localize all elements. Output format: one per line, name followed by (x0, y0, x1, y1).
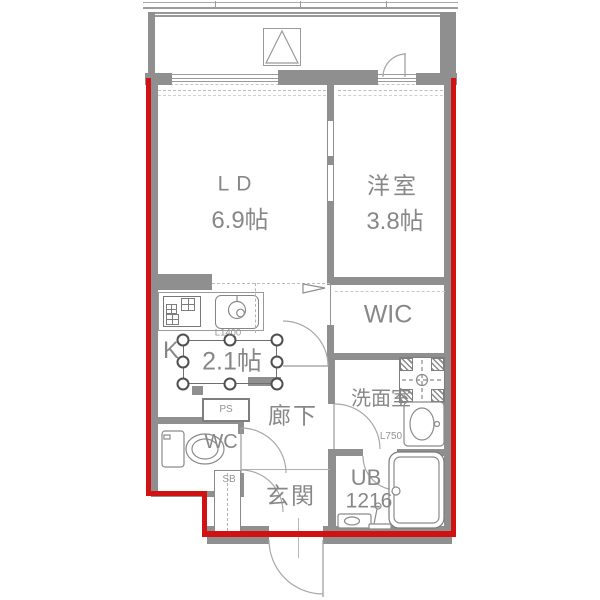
selection-handle-s[interactable] (224, 378, 237, 391)
room-label-kitchen: K (163, 339, 179, 363)
vanity-length: L750 (380, 432, 402, 442)
room-label-washroom: 洗面室 (351, 389, 411, 409)
sliding-door-arrow-icon (303, 284, 325, 293)
room-size-ld: 6.9帖 (211, 209, 268, 233)
faucet-icon-inner (237, 309, 245, 317)
room-size-bath: 1216 (346, 491, 393, 512)
room-size-western: 3.8帖 (366, 210, 423, 234)
escape-hatch-triangle-icon (266, 31, 298, 63)
room-label-wc: WC (204, 432, 237, 452)
room-label-ld: LD (218, 174, 259, 195)
room-label-hallway: 廊下 (268, 405, 318, 428)
bath-basin-icon (345, 517, 360, 525)
room-label-bath: UB (351, 467, 382, 489)
hall-door-swing (283, 321, 328, 366)
toilet-lever-icon (164, 435, 170, 439)
room-size-kitchen[interactable]: 2.1帖 (202, 350, 262, 375)
wc-door-swing (241, 428, 286, 473)
room-label-entrance: 玄関 (266, 485, 316, 508)
unit-outline-left (146, 78, 151, 496)
unit-outline-right (451, 78, 456, 537)
unit-outline-step (146, 491, 207, 496)
room-label-western: 洋室 (367, 175, 419, 198)
room-label-ps: PS (219, 405, 232, 415)
vanity-basin-icon (410, 408, 434, 440)
room-label-sb: SB (222, 475, 235, 485)
selection-handle-e[interactable] (271, 356, 284, 369)
selection-handle-sw[interactable] (177, 378, 190, 391)
floorplan-canvas: LD 6.9帖 洋室 3.8帖 WIC K 2.1帖 L1400 PS WC 廊… (0, 0, 600, 600)
shower-base (369, 524, 391, 529)
selection-handle-ne[interactable] (271, 334, 284, 347)
entrance-door-swing (269, 540, 323, 594)
kitchen-counter-length: L1400 (215, 328, 241, 338)
plan-linework (0, 0, 600, 600)
unit-outline-bottom (202, 531, 456, 537)
room-label-wic: WIC (364, 303, 413, 328)
selection-handle-se[interactable] (271, 378, 284, 391)
washroom-door-swing (335, 404, 380, 449)
vanity-faucet-icon (435, 422, 440, 427)
balcony-partition-swing (383, 54, 405, 77)
bath-faucet-icon (392, 487, 400, 495)
